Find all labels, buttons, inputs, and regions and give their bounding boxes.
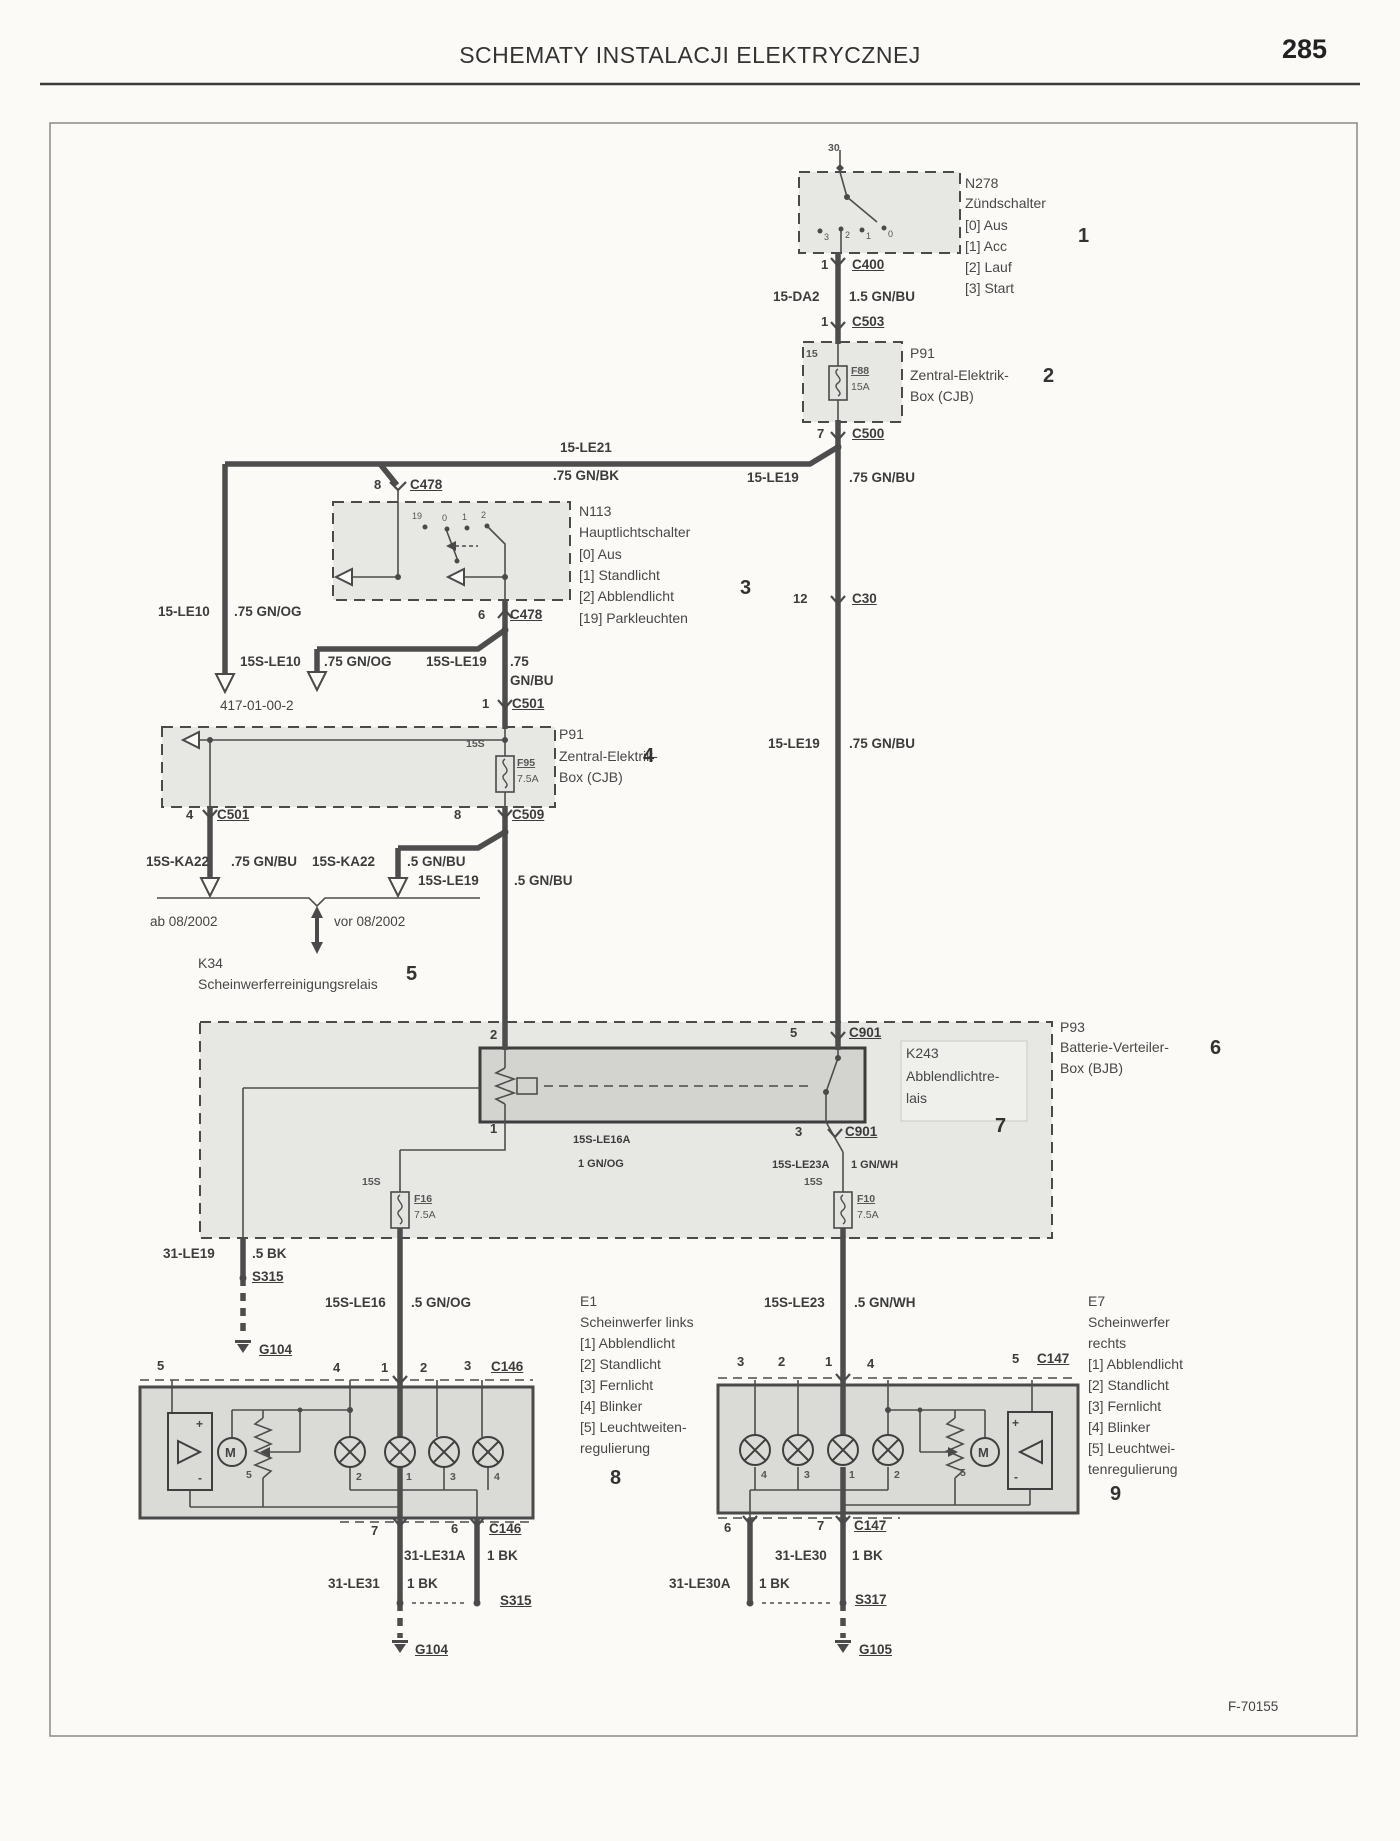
- component-label: P93: [1060, 1020, 1085, 1034]
- switch-position-label: 0: [442, 514, 447, 523]
- wire-label: 15S-LE19: [426, 655, 487, 669]
- element-number: 2: [356, 1472, 362, 1483]
- switch-position-label: 3: [824, 233, 829, 242]
- wire-label: 1 BK: [407, 1577, 438, 1591]
- wire-label: .5 BK: [252, 1247, 287, 1261]
- manual-page: SCHEMATY INSTALACJI ELEKTRYCZNEJ285F-701…: [0, 0, 1400, 1841]
- wire-label: .5 GN/OG: [411, 1296, 471, 1310]
- wire-label: 31-LE19: [163, 1247, 215, 1261]
- terminal-label: 30: [828, 143, 840, 154]
- component-label: Scheinwerfer links: [580, 1315, 694, 1329]
- wire-label: 15-LE10: [158, 605, 210, 619]
- symbol-mark: +: [1012, 1417, 1019, 1429]
- note-label: vor 08/2002: [334, 915, 405, 929]
- pin-number: 1: [482, 697, 489, 710]
- connector-label: C509: [512, 808, 544, 822]
- item-number: 6: [1210, 1038, 1221, 1058]
- figure-code: F-70155: [1228, 1700, 1278, 1714]
- fuse-label: F95: [517, 758, 535, 769]
- pin-number: 2: [420, 1361, 427, 1374]
- element-number: 3: [450, 1472, 456, 1483]
- wire-label: 15-LE19: [747, 471, 799, 485]
- component-label: K34: [198, 956, 223, 970]
- wire-label: .75 GN/BU: [849, 471, 915, 485]
- component-label: [2] Abblendlicht: [579, 589, 674, 603]
- connector-label: C478: [510, 608, 542, 622]
- wire-label: 31-LE31A: [404, 1549, 466, 1563]
- component-label: [1] Abblendlicht: [580, 1336, 675, 1350]
- item-number: 4: [643, 746, 654, 766]
- wire-label: 15S-KA22: [146, 855, 209, 869]
- page-header-title: SCHEMATY INSTALACJI ELEKTRYCZNEJ: [459, 44, 921, 67]
- item-number: 9: [1110, 1484, 1121, 1504]
- wire-label: 15S-LE19: [418, 874, 479, 888]
- wire-label: .75: [510, 655, 529, 669]
- connector-label: C501: [217, 808, 249, 822]
- terminal-label: 15S: [362, 1177, 381, 1188]
- component-label: [3] Fernlicht: [1088, 1399, 1161, 1413]
- switch-position-label: 1: [462, 513, 467, 522]
- connector-label: C901: [845, 1125, 877, 1139]
- connector-label: C146: [491, 1360, 523, 1374]
- component-label: [2] Lauf: [965, 260, 1012, 274]
- component-label: Batterie-Verteiler-: [1060, 1040, 1169, 1054]
- component-label: N113: [579, 504, 611, 518]
- switch-position-label: 0: [888, 230, 893, 239]
- symbol-mark: -: [1014, 1471, 1018, 1483]
- wire-label: .5 GN/BU: [407, 855, 466, 869]
- pin-number: 8: [454, 808, 461, 821]
- note-label: ab 08/2002: [150, 915, 218, 929]
- component-label: [3] Fernlicht: [580, 1378, 653, 1392]
- pin-number: 1: [821, 315, 828, 328]
- component-label: Zündschalter: [965, 196, 1046, 210]
- component-label: rechts: [1088, 1336, 1126, 1350]
- element-number: 5: [960, 1468, 966, 1479]
- wire-label: 1 BK: [852, 1549, 883, 1563]
- wire-label: 31-LE30: [775, 1549, 827, 1563]
- switch-position-label: 2: [481, 511, 486, 520]
- symbol-mark: -: [198, 1472, 202, 1484]
- connector-label: S315: [500, 1594, 532, 1608]
- component-label: [4] Blinker: [580, 1399, 642, 1413]
- component-label: Zentral-Elektrik-: [910, 368, 1009, 382]
- wire-label: 15S-KA22: [312, 855, 375, 869]
- wire-label: 15S-LE16A: [573, 1135, 630, 1146]
- component-label: [0] Aus: [965, 218, 1008, 232]
- diagram-labels: SCHEMATY INSTALACJI ELEKTRYCZNEJ285F-701…: [0, 0, 1400, 1841]
- connector-label: C500: [852, 427, 884, 441]
- element-number: 4: [761, 1470, 767, 1481]
- pin-number: 3: [464, 1359, 471, 1372]
- wire-label: .75 GN/BU: [849, 737, 915, 751]
- connector-label: C503: [852, 315, 884, 329]
- fuse-label: 7.5A: [414, 1210, 436, 1221]
- item-number: 3: [740, 578, 751, 598]
- pin-number: 4: [186, 808, 193, 821]
- element-number: 5: [246, 1470, 252, 1481]
- wire-label: 1 GN/OG: [578, 1159, 624, 1170]
- symbol-mark: M: [978, 1446, 989, 1459]
- wire-label: 15-LE19: [768, 737, 820, 751]
- note-label: 417-01-00-2: [220, 699, 294, 713]
- component-label: P91: [559, 727, 584, 741]
- component-label: regulierung: [580, 1441, 650, 1455]
- pin-number: 4: [333, 1361, 340, 1374]
- fuse-label: F10: [857, 1194, 875, 1205]
- component-label: [2] Standlicht: [1088, 1378, 1169, 1392]
- wire-label: .75 GN/BU: [231, 855, 297, 869]
- pin-number: 6: [724, 1521, 731, 1534]
- component-label: Box (CJB): [559, 770, 623, 784]
- component-label: lais: [906, 1091, 927, 1105]
- component-label: [19] Parkleuchten: [579, 611, 688, 625]
- component-label: Abblendlichtre-: [906, 1069, 999, 1083]
- item-number: 1: [1078, 226, 1089, 246]
- terminal-label: 15S: [466, 739, 485, 750]
- component-label: [1] Abblendlicht: [1088, 1357, 1183, 1371]
- component-label: [0] Aus: [579, 547, 622, 561]
- component-label: K243: [906, 1046, 939, 1060]
- component-label: [4] Blinker: [1088, 1420, 1150, 1434]
- wire-label: 1.5 GN/BU: [849, 290, 915, 304]
- connector-label: C478: [410, 478, 442, 492]
- component-label: N278: [965, 176, 998, 190]
- wire-label: .5 GN/BU: [514, 874, 573, 888]
- switch-position-label: 1: [866, 232, 871, 241]
- pin-number: 6: [451, 1522, 458, 1535]
- component-label: tenregulierung: [1088, 1462, 1178, 1476]
- pin-number: 1: [821, 258, 828, 271]
- fuse-label: 7.5A: [517, 774, 539, 785]
- wire-label: 1 GN/WH: [851, 1160, 898, 1171]
- element-number: 1: [406, 1472, 412, 1483]
- wire-label: .75 GN/OG: [234, 605, 302, 619]
- switch-position-label: 19: [412, 512, 422, 521]
- fuse-label: 7.5A: [857, 1210, 879, 1221]
- component-label: [2] Standlicht: [580, 1357, 661, 1371]
- pin-number: 4: [867, 1357, 874, 1370]
- component-label: Scheinwerferreinigungsrelais: [198, 977, 378, 991]
- component-label: [5] Leuchtweiten-: [580, 1420, 687, 1434]
- item-number: 5: [406, 964, 417, 984]
- pin-number: 7: [817, 427, 824, 440]
- connector-label: S315: [252, 1270, 284, 1284]
- connector-label: C400: [852, 258, 884, 272]
- wire-label: 31-LE30A: [669, 1577, 731, 1591]
- component-label: Scheinwerfer: [1088, 1315, 1170, 1329]
- component-label: E7: [1088, 1294, 1105, 1308]
- wire-label: 15-DA2: [773, 290, 820, 304]
- pin-number: 5: [790, 1026, 797, 1039]
- connector-label: C146: [489, 1522, 521, 1536]
- pin-number: 6: [478, 608, 485, 621]
- element-number: 2: [894, 1470, 900, 1481]
- pin-number: 7: [817, 1519, 824, 1532]
- item-number: 2: [1043, 366, 1054, 386]
- connector-label: C147: [1037, 1352, 1069, 1366]
- element-number: 3: [804, 1470, 810, 1481]
- wire-label: 1 BK: [487, 1549, 518, 1563]
- symbol-mark: M: [225, 1446, 236, 1459]
- item-number: 8: [610, 1468, 621, 1488]
- fuse-label: F88: [851, 366, 869, 377]
- wire-label: 15S-LE10: [240, 655, 301, 669]
- pin-number: 1: [825, 1355, 832, 1368]
- symbol-mark: +: [196, 1418, 203, 1430]
- component-label: [3] Start: [965, 281, 1014, 295]
- connector-label: C501: [512, 697, 544, 711]
- pin-number: 2: [778, 1355, 785, 1368]
- pin-number: 8: [374, 478, 381, 491]
- pin-number: 2: [490, 1028, 497, 1041]
- pin-number: 12: [793, 592, 807, 605]
- page-number: 285: [1282, 36, 1327, 63]
- component-label: Hauptlichtschalter: [579, 525, 690, 539]
- item-number: 7: [995, 1116, 1006, 1136]
- switch-position-label: 2: [845, 231, 850, 240]
- component-label: Box (BJB): [1060, 1061, 1123, 1075]
- pin-number: 1: [381, 1361, 388, 1374]
- connector-label: C901: [849, 1026, 881, 1040]
- connector-label: C30: [852, 592, 877, 606]
- terminal-label: 15: [806, 349, 818, 360]
- terminal-label: 15S: [804, 1177, 823, 1188]
- wire-label: 15-LE21: [560, 441, 612, 455]
- connector-label: S317: [855, 1593, 887, 1607]
- wire-label: 31-LE31: [328, 1577, 380, 1591]
- element-number: 4: [494, 1472, 500, 1483]
- pin-number: 5: [1012, 1352, 1019, 1365]
- component-label: E1: [580, 1294, 597, 1308]
- pin-number: 7: [371, 1524, 378, 1537]
- wire-label: 15S-LE23A: [772, 1160, 829, 1171]
- connector-label: G104: [415, 1643, 448, 1657]
- connector-label: G104: [259, 1343, 292, 1357]
- wire-label: 15S-LE16: [325, 1296, 386, 1310]
- fuse-label: 15A: [851, 382, 870, 393]
- wire-label: GN/BU: [510, 674, 554, 688]
- wire-label: .75 GN/OG: [324, 655, 392, 669]
- pin-number: 3: [737, 1355, 744, 1368]
- fuse-label: F16: [414, 1194, 432, 1205]
- pin-number: 1: [490, 1122, 497, 1135]
- component-label: Box (CJB): [910, 389, 974, 403]
- component-label: [1] Acc: [965, 239, 1007, 253]
- wire-label: .5 GN/WH: [854, 1296, 916, 1310]
- component-label: [5] Leuchtwei-: [1088, 1441, 1175, 1455]
- wire-label: 15S-LE23: [764, 1296, 825, 1310]
- element-number: 1: [849, 1470, 855, 1481]
- pin-number: 5: [157, 1359, 164, 1372]
- connector-label: C147: [854, 1519, 886, 1533]
- pin-number: 3: [795, 1125, 802, 1138]
- component-label: [1] Standlicht: [579, 568, 660, 582]
- wire-label: 1 BK: [759, 1577, 790, 1591]
- connector-label: G105: [859, 1643, 892, 1657]
- component-label: P91: [910, 346, 935, 360]
- wire-label: .75 GN/BK: [553, 469, 619, 483]
